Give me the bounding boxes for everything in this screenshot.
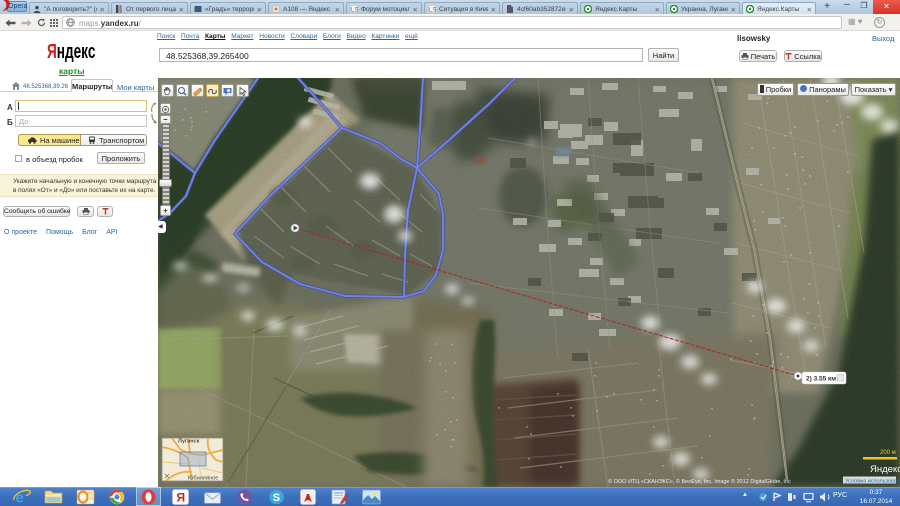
svg-text:Юбилейное: Юбилейное (188, 475, 218, 482)
svg-text:Луганск: Луганск (178, 439, 200, 445)
svg-text:© ООО ИТЦ «СКАНЭКС», © BeoEye,: © ООО ИТЦ «СКАНЭКС», © BeoEye, Inc, Imag… (608, 478, 791, 485)
svg-text:200 м: 200 м (880, 450, 896, 456)
svg-text:Я: Я (177, 491, 186, 505)
svg-text:Условия использования: Условия использования (845, 479, 900, 485)
svg-text:Яндекс: Яндекс (870, 464, 900, 475)
svg-text:LS: LS (429, 8, 436, 14)
svg-text:S: S (273, 492, 280, 504)
svg-text:2) 3.55 км: 2) 3.55 км (806, 376, 836, 383)
svg-text:LS: LS (351, 8, 358, 14)
